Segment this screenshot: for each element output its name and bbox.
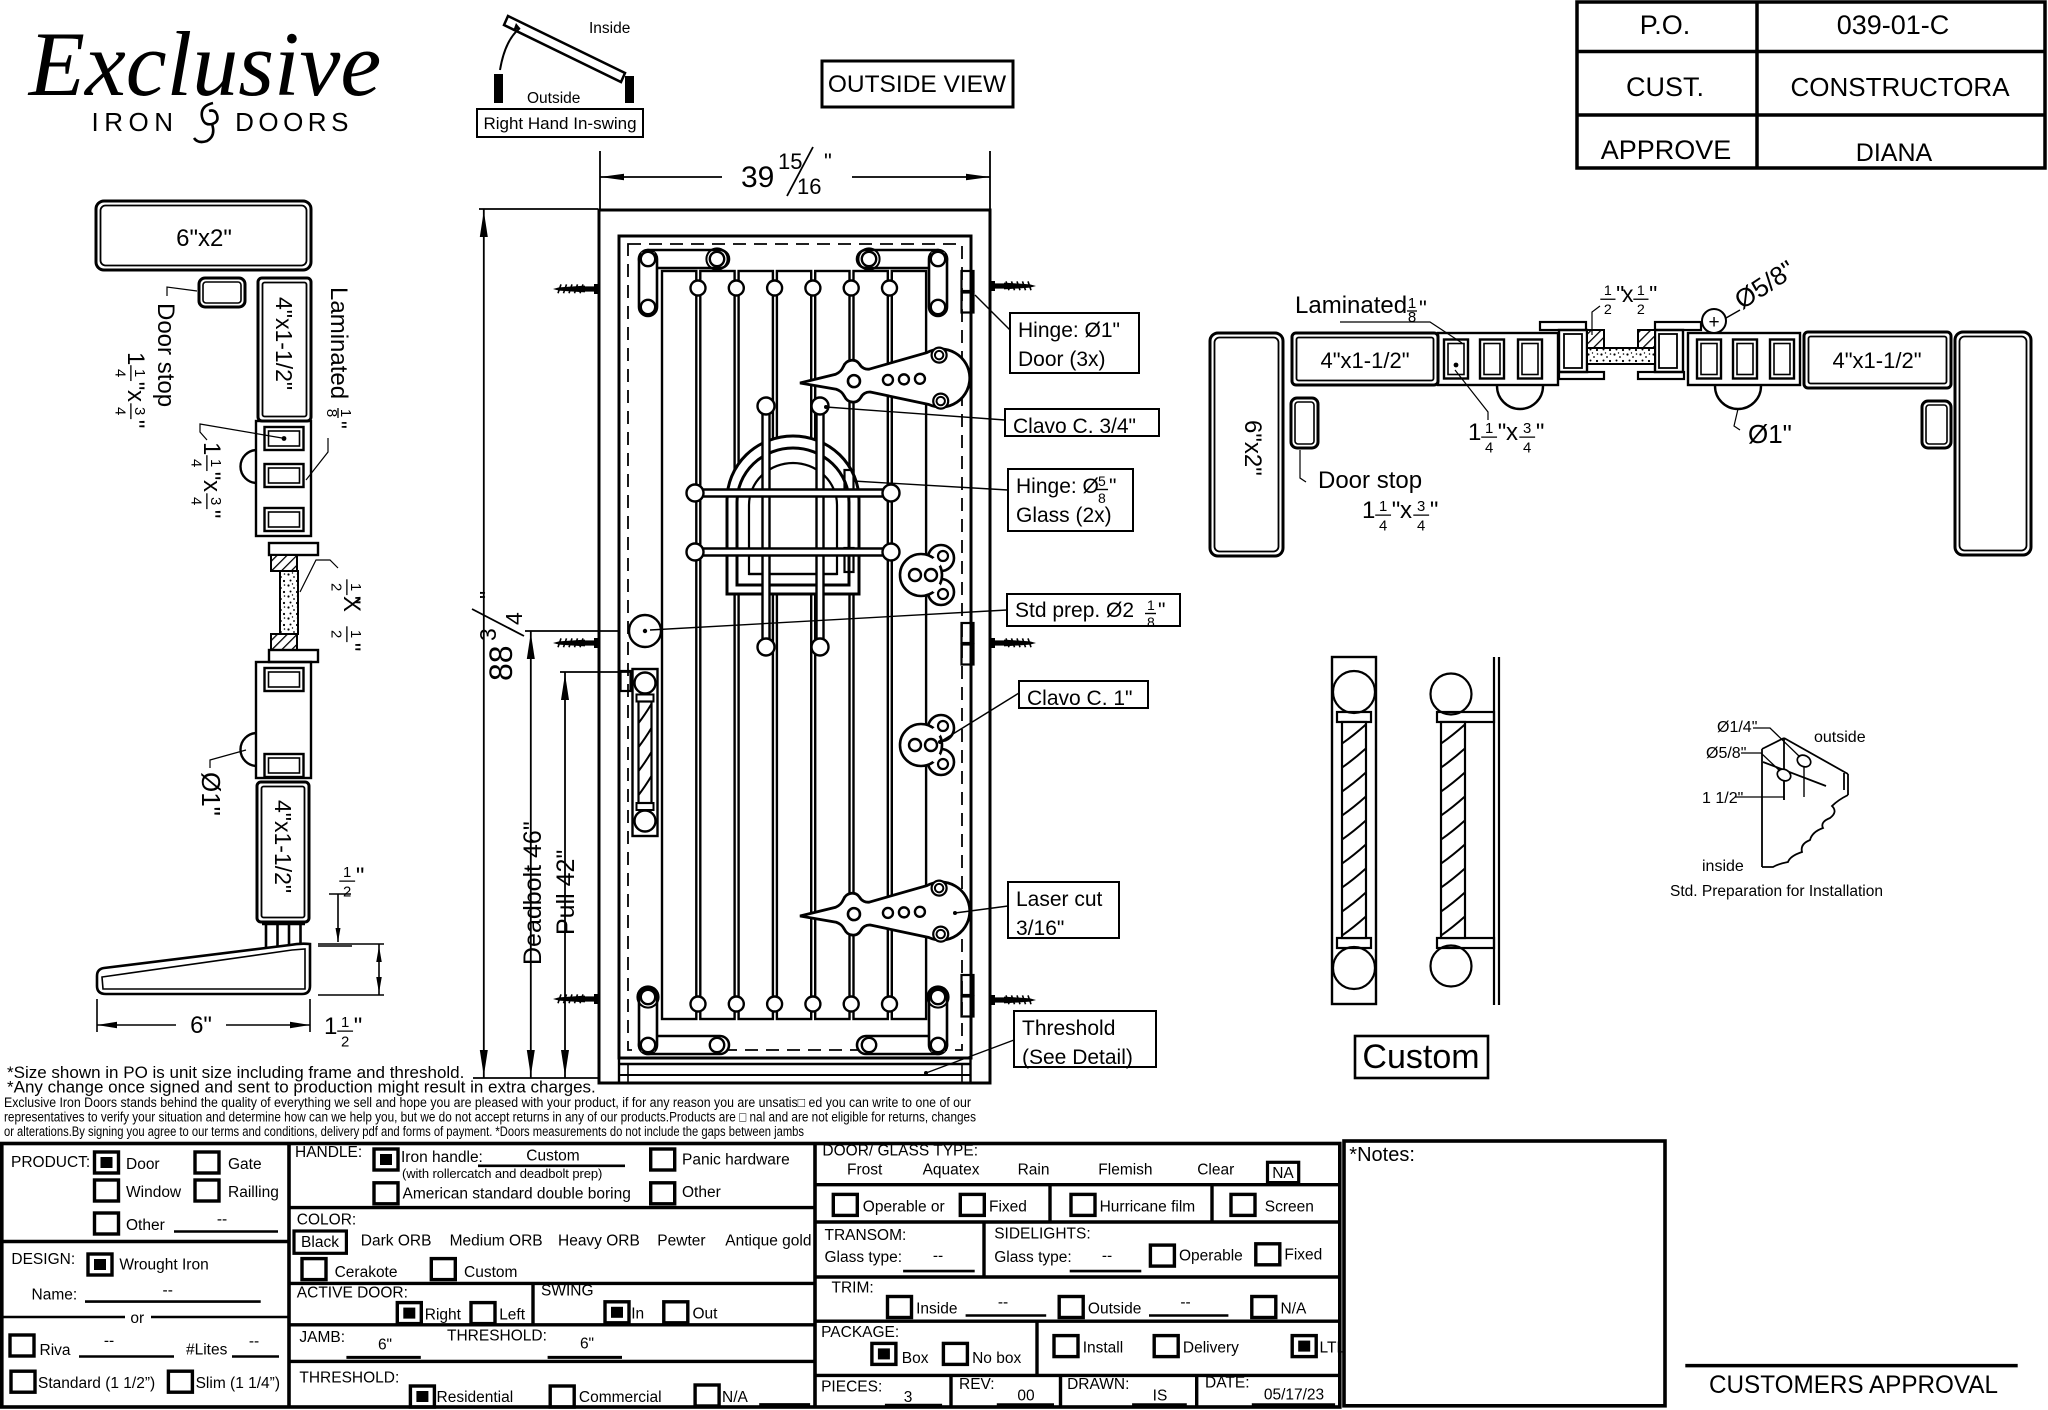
svg-text:Operable: Operable [1179,1248,1243,1265]
svg-text:Clavo C. 1": Clavo C. 1" [1027,687,1133,710]
svg-text:CUSTOMERS APPROVAL: CUSTOMERS APPROVAL [1709,1371,1998,1399]
svg-text:Panic hardware: Panic hardware [682,1152,790,1169]
svg-text:1: 1 [347,583,363,591]
svg-text:inside: inside [1702,858,1744,875]
svg-text:6": 6" [190,1012,212,1039]
svg-text:P.O.: P.O. [1640,10,1691,40]
svg-text:2: 2 [328,630,344,638]
svg-text:COLOR:: COLOR: [297,1212,356,1229]
svg-text:Laser cut: Laser cut [1016,888,1103,911]
svg-text:x: x [1400,497,1412,524]
svg-text:Out: Out [693,1305,719,1322]
svg-text:2: 2 [328,583,344,591]
svg-text:*Any change once signed and se: *Any change once signed and sent to prod… [7,1078,596,1097]
svg-text:39: 39 [741,161,774,194]
svg-text:Delivery: Delivery [1183,1340,1239,1357]
svg-text:Custom: Custom [464,1264,517,1281]
svg-text:Flemish: Flemish [1098,1161,1152,1178]
svg-text:": " [354,1013,363,1040]
svg-text:Wrought Iron: Wrought Iron [119,1257,208,1274]
svg-text:Rain: Rain [1018,1161,1050,1178]
svg-text:SIDELIGHTS:: SIDELIGHTS: [994,1226,1090,1243]
svg-text:Exclusive Iron Doors stands be: Exclusive Iron Doors stands behind the q… [4,1095,971,1110]
svg-text:1: 1 [122,352,149,365]
svg-text:Black: Black [301,1234,339,1251]
svg-text:1: 1 [1604,283,1612,299]
svg-text:": " [1498,419,1507,446]
svg-text:4"x1-1/2": 4"x1-1/2" [271,297,297,390]
svg-text:IS: IS [1153,1388,1168,1405]
svg-text:Medium ORB: Medium ORB [450,1233,543,1250]
svg-text:Outside: Outside [527,90,580,107]
svg-text:REV:: REV: [959,1376,995,1393]
svg-text:--: -- [217,1211,227,1228]
svg-text:Outside: Outside [1088,1300,1141,1317]
svg-text:6"x2": 6"x2" [176,225,232,252]
svg-text:4: 4 [188,497,204,505]
svg-text:Heavy ORB: Heavy ORB [558,1233,640,1250]
svg-text:8: 8 [1147,614,1155,630]
svg-text:x: x [122,390,149,402]
svg-text:Pull 42": Pull 42" [552,850,580,935]
svg-text:3: 3 [1417,499,1425,515]
svg-text:Antique gold: Antique gold [725,1233,811,1250]
svg-text:Commercial: Commercial [579,1389,662,1406]
svg-text:x: x [1506,419,1518,446]
svg-text:3: 3 [475,628,501,641]
svg-text:DOOR/ GLASS TYPE:: DOOR/ GLASS TYPE: [822,1142,978,1159]
svg-text:No box: No box [972,1350,1021,1367]
svg-text:3: 3 [207,497,223,505]
svg-text:Door stop: Door stop [152,303,179,407]
svg-text:CUST.: CUST. [1626,72,1704,102]
svg-text:Custom: Custom [1362,1038,1479,1076]
svg-text:4: 4 [1485,440,1493,456]
svg-text:Std prep. Ø2: Std prep. Ø2 [1015,599,1134,622]
svg-text:Laminated: Laminated [1295,292,1407,319]
svg-text:THRESHOLD:: THRESHOLD: [447,1328,547,1345]
svg-text:Glass (2x): Glass (2x) [1016,504,1112,527]
svg-text:6": 6" [580,1335,594,1352]
svg-text:PACKAGE:: PACKAGE: [821,1324,899,1341]
svg-text:1: 1 [207,459,223,467]
svg-text:4: 4 [188,459,204,467]
svg-text:Threshold: Threshold [1022,1017,1115,1040]
svg-text:3: 3 [904,1389,913,1406]
svg-text:4: 4 [1417,518,1425,534]
svg-text:CONSTRUCTORA: CONSTRUCTORA [1790,72,2010,102]
svg-text:4: 4 [1379,518,1387,534]
svg-text:4"x1-1/2": 4"x1-1/2" [270,800,296,893]
svg-text:#Lites: #Lites [186,1341,228,1358]
svg-text:": " [326,421,351,429]
svg-text:Fixed: Fixed [989,1198,1027,1215]
svg-text:4: 4 [112,407,128,415]
svg-text:16: 16 [797,174,821,199]
svg-text:Iron handle:: Iron handle: [401,1149,483,1166]
svg-text:Window: Window [126,1184,182,1201]
svg-text:DIANA: DIANA [1856,139,1933,167]
svg-text:In: In [631,1305,644,1322]
svg-text:Install: Install [1083,1340,1124,1357]
svg-text:": " [1109,475,1116,498]
svg-text:": " [1649,281,1657,307]
svg-text:x: x [198,480,225,492]
svg-text:Ø1/4": Ø1/4" [1717,719,1757,736]
svg-text:NA: NA [1272,1165,1294,1182]
svg-text:APPROVE: APPROVE [1601,135,1732,165]
svg-text:(See Detail): (See Detail) [1022,1046,1133,1069]
svg-text:1: 1 [131,369,147,377]
svg-text:15: 15 [778,149,802,174]
svg-text:2: 2 [1604,302,1612,318]
svg-text:4: 4 [112,369,128,377]
svg-text:": " [1430,497,1439,524]
svg-text:1: 1 [1468,419,1481,446]
svg-text:or: or [130,1310,144,1327]
svg-text:--: -- [163,1282,173,1299]
svg-text:Door: Door [126,1156,160,1173]
svg-text:Other: Other [682,1184,721,1201]
svg-text:Aquatex: Aquatex [923,1161,980,1178]
svg-text:DESIGN:: DESIGN: [11,1251,75,1268]
svg-text:x: x [1622,281,1634,307]
svg-text:Residential: Residential [437,1389,514,1406]
svg-text:6"x2": 6"x2" [1239,420,1266,476]
svg-text:Fixed: Fixed [1284,1246,1322,1263]
svg-text:2: 2 [341,1034,349,1050]
svg-text:2: 2 [343,884,351,900]
svg-text:TRANSOM:: TRANSOM: [825,1227,907,1244]
svg-text:4: 4 [501,612,527,625]
svg-text:88: 88 [483,645,519,681]
svg-text:1: 1 [341,1015,349,1031]
svg-text:PIECES:: PIECES: [821,1379,882,1396]
svg-text:": " [1419,296,1427,321]
svg-text:Dark ORB: Dark ORB [361,1233,432,1250]
svg-text:5: 5 [1098,473,1106,489]
svg-text:Screen: Screen [1265,1198,1314,1215]
svg-text:DRAWN:: DRAWN: [1067,1376,1129,1393]
svg-text:Gate: Gate [228,1156,262,1173]
svg-text:Name:: Name: [32,1286,78,1303]
svg-text:Hinge: Ø1": Hinge: Ø1" [1018,319,1120,342]
svg-text:": " [356,863,365,890]
svg-text:": " [198,510,225,519]
svg-text:HANDLE:: HANDLE: [295,1144,362,1161]
svg-text:3: 3 [1523,421,1531,437]
svg-text:039-01-C: 039-01-C [1837,10,1950,40]
svg-text:--: -- [998,1294,1008,1311]
svg-text:DATE:: DATE: [1205,1375,1250,1392]
svg-text:JAMB:: JAMB: [299,1329,345,1346]
svg-text:Pewter: Pewter [657,1233,705,1250]
svg-text:": " [1392,497,1401,524]
svg-text:N/A: N/A [1281,1300,1308,1317]
svg-text:1: 1 [343,865,351,881]
svg-text:2: 2 [1637,302,1645,318]
svg-text:Right: Right [425,1307,462,1324]
svg-text:N/A: N/A [722,1389,749,1406]
svg-text:6": 6" [378,1337,392,1354]
svg-text:Inside: Inside [589,20,630,37]
svg-text:": " [122,382,149,391]
svg-text:4"x1-1/2": 4"x1-1/2" [1321,348,1410,373]
svg-text:ACTIVE DOOR:: ACTIVE DOOR: [297,1284,408,1301]
svg-text:4"x1-1/2": 4"x1-1/2" [1833,348,1922,373]
svg-text:X: X [338,596,365,612]
svg-text:representatives to verify your: representatives to verify your situation… [4,1110,976,1125]
svg-text:": " [475,591,501,599]
svg-text:": " [1158,599,1165,622]
svg-text:1: 1 [1637,283,1645,299]
svg-text:Exclusive: Exclusive [27,13,381,115]
svg-text:Left: Left [499,1307,526,1324]
svg-text:1: 1 [198,442,225,455]
svg-text:American standard double borin: American standard double boring [403,1186,631,1203]
svg-text:Frost: Frost [847,1161,883,1178]
svg-text:OUTSIDE VIEW: OUTSIDE VIEW [828,71,1007,98]
svg-text:": " [1536,419,1545,446]
svg-text:1: 1 [324,1013,337,1040]
svg-text:Ø5/8": Ø5/8" [1706,745,1746,762]
svg-text:Glass type:: Glass type: [994,1249,1072,1266]
svg-text:3/16": 3/16" [1016,917,1064,940]
svg-text:Door (3x): Door (3x) [1018,348,1106,371]
svg-text:--: -- [1102,1248,1112,1265]
svg-text:Box: Box [902,1350,929,1367]
svg-text:*Notes:: *Notes: [1349,1144,1415,1166]
svg-text:3: 3 [131,407,147,415]
svg-text:or alterations.By signing you: or alterations.By signing you agree to o… [4,1124,804,1139]
svg-text:00: 00 [1017,1388,1035,1405]
svg-text:1: 1 [1485,421,1493,437]
svg-text:1: 1 [347,630,363,638]
svg-text:05/17/23: 05/17/23 [1264,1386,1324,1403]
svg-text:Other: Other [126,1217,165,1234]
svg-text:": " [122,420,149,429]
svg-text:Hinge: Ø: Hinge: Ø [1016,475,1099,498]
svg-text:--: -- [933,1248,943,1265]
svg-text:Hurricane film: Hurricane film [1100,1198,1196,1215]
svg-text:Deadbolt 46": Deadbolt 46" [519,821,547,965]
svg-text:Custom: Custom [526,1148,579,1165]
svg-text:Glass type:: Glass type: [825,1249,903,1266]
svg-text:Door stop: Door stop [1318,467,1422,494]
svg-text:SWING: SWING [541,1283,594,1300]
svg-text:Riva: Riva [40,1342,71,1359]
svg-text:Ø1": Ø1" [196,772,226,816]
svg-text:Right Hand In-swing: Right Hand In-swing [483,114,636,133]
svg-text:(with rollercatch and deadbolt: (with rollercatch and deadbolt prep) [402,1166,602,1181]
svg-text:4: 4 [1523,440,1531,456]
svg-text:DOORS: DOORS [235,107,353,137]
svg-text:Laminated: Laminated [325,287,352,399]
svg-text:1: 1 [1379,499,1387,515]
svg-text:--: -- [249,1333,259,1350]
svg-text:Slim (1 1/4”): Slim (1 1/4”) [196,1375,280,1392]
svg-text:Ø1": Ø1" [1748,419,1792,449]
svg-text:Operable or: Operable or [863,1198,945,1215]
svg-text:Clear: Clear [1197,1161,1234,1178]
svg-text:": " [338,643,365,652]
svg-text:1 1/2": 1 1/2" [1702,790,1743,807]
svg-text:Std. Preparation for Installat: Std. Preparation for Installation [1670,883,1883,900]
svg-text:1: 1 [1147,597,1155,613]
svg-text:Inside: Inside [916,1300,957,1317]
svg-text:TRIM:: TRIM: [832,1280,874,1297]
svg-text:Railling: Railling [228,1184,279,1201]
svg-text:THRESHOLD:: THRESHOLD: [299,1369,399,1386]
svg-text:IRON: IRON [92,107,179,137]
svg-text:": " [198,472,225,481]
svg-text:+: + [1708,312,1719,333]
svg-text:Cerakote: Cerakote [335,1264,398,1281]
svg-text:LTL: LTL [1320,1340,1346,1357]
svg-text:Standard (1 1/2”): Standard (1 1/2”) [38,1375,155,1392]
svg-text:": " [824,149,832,174]
svg-text:--: -- [104,1333,114,1350]
svg-text:outside: outside [1814,729,1866,746]
svg-text:Clavo C. 3/4": Clavo C. 3/4" [1013,415,1136,438]
svg-text:PRODUCT:: PRODUCT: [11,1154,90,1171]
svg-text:--: -- [1180,1294,1190,1311]
svg-text:1: 1 [1362,497,1375,524]
